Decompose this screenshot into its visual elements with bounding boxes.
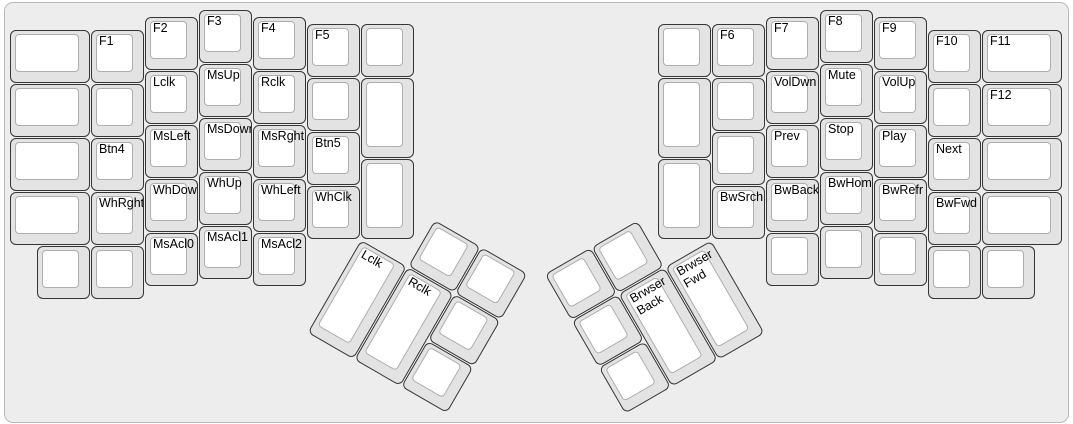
key-rclk[interactable]: Rclk bbox=[253, 71, 306, 124]
keycap-label: VolDwn bbox=[774, 76, 816, 90]
keycap-top-surface bbox=[663, 82, 700, 147]
key-blank[interactable] bbox=[361, 159, 414, 239]
key-f11[interactable]: F11 bbox=[982, 30, 1062, 83]
keycap-top-surface bbox=[366, 82, 403, 147]
keycap-label: Btn5 bbox=[315, 137, 341, 151]
key-msacl0[interactable]: MsAcl0 bbox=[145, 233, 198, 286]
key-msrght[interactable]: MsRght bbox=[253, 125, 306, 178]
key-blank[interactable] bbox=[712, 132, 765, 185]
key-f9[interactable]: F9 bbox=[874, 17, 927, 70]
keycap-label: F9 bbox=[882, 22, 897, 36]
keycap-label: MsUp bbox=[207, 69, 240, 83]
keycap-top-surface bbox=[879, 237, 916, 275]
key-whdown[interactable]: WhDown bbox=[145, 179, 198, 232]
key-blank[interactable] bbox=[361, 24, 414, 77]
key-whup[interactable]: WhUp bbox=[199, 172, 252, 225]
keycap-top-surface bbox=[663, 163, 700, 228]
key-f5[interactable]: F5 bbox=[307, 24, 360, 77]
keycap-label: Stop bbox=[828, 123, 854, 137]
keycap-top-surface bbox=[933, 250, 970, 288]
key-msacl2[interactable]: MsAcl2 bbox=[253, 233, 306, 286]
key-whclk[interactable]: WhClk bbox=[307, 186, 360, 239]
key-f4[interactable]: F4 bbox=[253, 17, 306, 70]
keycap-label: MsAcl2 bbox=[261, 238, 302, 252]
keycap-label: F8 bbox=[828, 15, 843, 29]
keycap-label: F1 bbox=[99, 35, 114, 49]
keycap-top-surface bbox=[366, 28, 403, 66]
keycap-label: F4 bbox=[261, 22, 276, 36]
key-bwhome[interactable]: BwHome bbox=[820, 172, 873, 225]
keycap-top-surface bbox=[933, 88, 970, 126]
keycap-top-surface bbox=[717, 136, 754, 174]
keycap-label: F2 bbox=[153, 22, 168, 36]
key-msup[interactable]: MsUp bbox=[199, 64, 252, 117]
keycap-label: MsAcl1 bbox=[207, 231, 248, 245]
key-stop[interactable]: Stop bbox=[820, 118, 873, 171]
keycap-label: Prev bbox=[774, 130, 800, 144]
key-blank[interactable] bbox=[91, 84, 144, 137]
keycap-label: Play bbox=[882, 130, 906, 144]
keycap-top-surface bbox=[15, 196, 79, 234]
keycap-label: F7 bbox=[774, 22, 789, 36]
keycap-label: F11 bbox=[990, 35, 1011, 49]
key-blank[interactable] bbox=[982, 138, 1062, 191]
key-blank[interactable] bbox=[928, 84, 981, 137]
keycap-label: WhDown bbox=[153, 184, 198, 198]
key-f3[interactable]: F3 bbox=[199, 10, 252, 63]
key-f2[interactable]: F2 bbox=[145, 17, 198, 70]
key-prev[interactable]: Prev bbox=[766, 125, 819, 178]
keycap-label: Btn4 bbox=[99, 143, 125, 157]
key-blank[interactable] bbox=[820, 226, 873, 279]
key-play[interactable]: Play bbox=[874, 125, 927, 178]
key-msacl1[interactable]: MsAcl1 bbox=[199, 226, 252, 279]
keycap-top-surface bbox=[987, 250, 1024, 288]
key-bwrefr[interactable]: BwRefr bbox=[874, 179, 927, 232]
keycap-label: Rclk bbox=[261, 76, 285, 90]
key-msleft[interactable]: MsLeft bbox=[145, 125, 198, 178]
keycap-label: Mute bbox=[828, 69, 856, 83]
key-blank[interactable] bbox=[874, 233, 927, 286]
key-blank[interactable] bbox=[658, 24, 711, 77]
keycap-label: WhLeft bbox=[261, 184, 301, 198]
keycap-top-surface bbox=[312, 82, 349, 120]
key-f12[interactable]: F12 bbox=[982, 84, 1062, 137]
key-next[interactable]: Next bbox=[928, 138, 981, 191]
key-blank[interactable] bbox=[928, 246, 981, 299]
key-f7[interactable]: F7 bbox=[766, 17, 819, 70]
keycap-top-surface bbox=[42, 250, 79, 288]
key-btn4[interactable]: Btn4 bbox=[91, 138, 144, 191]
keycap-label: WhUp bbox=[207, 177, 242, 191]
key-bwsrch[interactable]: BwSrch bbox=[712, 186, 765, 239]
keycap-label: BwHome bbox=[828, 177, 873, 191]
keycap-top-surface bbox=[96, 88, 133, 126]
key-f1[interactable]: F1 bbox=[91, 30, 144, 83]
key-btn5[interactable]: Btn5 bbox=[307, 132, 360, 185]
keycap-label: BwRefr bbox=[882, 184, 923, 198]
keycap-label: F3 bbox=[207, 15, 222, 29]
keycap-top-surface bbox=[15, 34, 79, 72]
keycap-label: Lclk bbox=[153, 76, 175, 90]
keycap-top-surface bbox=[717, 82, 754, 120]
keycap-top-surface bbox=[663, 28, 700, 66]
key-bwfwd[interactable]: BwFwd bbox=[928, 192, 981, 245]
key-f8[interactable]: F8 bbox=[820, 10, 873, 63]
key-blank[interactable] bbox=[982, 246, 1035, 299]
keycap-label: F5 bbox=[315, 29, 330, 43]
key-mute[interactable]: Mute bbox=[820, 64, 873, 117]
keycap-label: MsRght bbox=[261, 130, 304, 144]
key-blank[interactable] bbox=[658, 78, 711, 158]
key-f6[interactable]: F6 bbox=[712, 24, 765, 77]
keycap-label: BwSrch bbox=[720, 191, 763, 205]
keycap-label: F12 bbox=[990, 89, 1012, 103]
key-f10[interactable]: F10 bbox=[928, 30, 981, 83]
keycap-top-surface bbox=[987, 142, 1051, 180]
keycap-top-surface bbox=[15, 142, 79, 180]
key-whleft[interactable]: WhLeft bbox=[253, 179, 306, 232]
keycap-top-surface bbox=[825, 230, 862, 268]
key-blank[interactable] bbox=[10, 138, 90, 191]
keycap-top-surface bbox=[15, 88, 79, 126]
keycap-top-surface bbox=[987, 196, 1051, 234]
key-blank[interactable] bbox=[766, 233, 819, 286]
keycap-label: BwFwd bbox=[936, 197, 977, 211]
keycap-top-surface bbox=[366, 163, 403, 228]
keycap-label: F6 bbox=[720, 29, 735, 43]
keycap-label: MsLeft bbox=[153, 130, 191, 144]
keycap-label: MsDown bbox=[207, 123, 252, 137]
keycap-top-surface bbox=[771, 237, 808, 275]
key-blank[interactable] bbox=[307, 78, 360, 131]
keycap-label: Next bbox=[936, 143, 962, 157]
keycap-label: VolUp bbox=[882, 76, 915, 90]
key-blank[interactable] bbox=[712, 78, 765, 131]
key-blank[interactable] bbox=[361, 78, 414, 158]
key-blank[interactable] bbox=[982, 192, 1062, 245]
key-blank[interactable] bbox=[91, 246, 144, 299]
key-blank[interactable] bbox=[37, 246, 90, 299]
key-blank[interactable] bbox=[10, 30, 90, 83]
key-blank[interactable] bbox=[10, 84, 90, 137]
keycap-top-surface bbox=[96, 250, 133, 288]
key-lclk[interactable]: Lclk bbox=[145, 71, 198, 124]
keycap-label: BwBack bbox=[774, 184, 819, 198]
keycap-label: MsAcl0 bbox=[153, 238, 194, 252]
keycap-label: WhClk bbox=[315, 191, 352, 205]
key-volup[interactable]: VolUp bbox=[874, 71, 927, 124]
key-blank[interactable] bbox=[658, 159, 711, 239]
key-msdown[interactable]: MsDown bbox=[199, 118, 252, 171]
key-blank[interactable] bbox=[10, 192, 90, 245]
keycap-label: F10 bbox=[936, 35, 958, 49]
keycap-label: WhRght bbox=[99, 197, 144, 211]
key-voldwn[interactable]: VolDwn bbox=[766, 71, 819, 124]
key-bwback[interactable]: BwBack bbox=[766, 179, 819, 232]
key-whrght[interactable]: WhRght bbox=[91, 192, 144, 245]
